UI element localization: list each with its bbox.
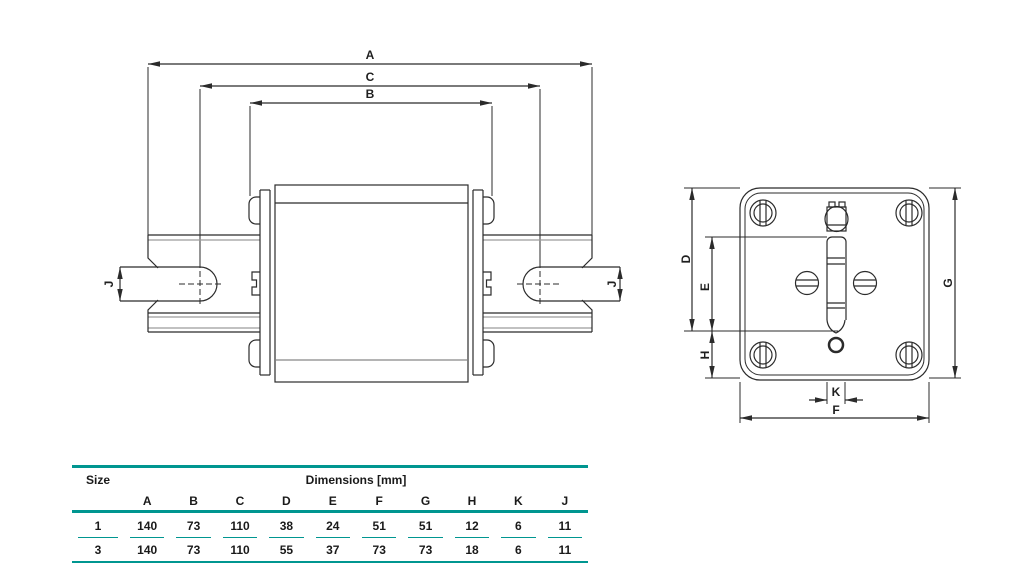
size-value: 1 bbox=[72, 513, 124, 538]
column-header-j: J bbox=[542, 495, 588, 507]
clip-top-right bbox=[483, 197, 494, 224]
left-rail bbox=[148, 235, 260, 332]
left-blade-terminal bbox=[120, 262, 223, 307]
dim-label-j-left: J bbox=[102, 281, 116, 288]
column-header-k: K bbox=[495, 495, 541, 507]
dim-label-h: H bbox=[698, 351, 712, 360]
clip-top-left bbox=[249, 197, 260, 224]
value-b: 73 bbox=[170, 513, 216, 538]
column-header-g: G bbox=[402, 495, 448, 507]
value-d: 38 bbox=[263, 513, 309, 538]
dim-label-b: B bbox=[366, 87, 375, 101]
dim-label-f: F bbox=[832, 403, 839, 417]
datasheet-page: A C B J J bbox=[0, 0, 1021, 582]
value-h: 12 bbox=[449, 513, 495, 538]
dim-label-e: E bbox=[698, 283, 712, 291]
latch-right bbox=[483, 272, 491, 295]
clip-bottom-left bbox=[249, 340, 260, 367]
dimensions-header: Dimensions [mm] bbox=[124, 474, 588, 486]
dimension-b bbox=[250, 103, 492, 196]
dim-label-k: K bbox=[832, 385, 841, 399]
fuse-body bbox=[249, 185, 494, 382]
value-j: 11 bbox=[542, 513, 588, 538]
table-row-size-1: 1 140 73 110 38 24 51 51 12 6 11 bbox=[72, 513, 588, 538]
dimensions-table: Size Dimensions [mm] A B C D E F G H K J… bbox=[72, 465, 588, 563]
value-a: 140 bbox=[124, 513, 170, 538]
value-e: 24 bbox=[310, 513, 356, 538]
dim-label-a: A bbox=[366, 48, 375, 62]
value-f: 51 bbox=[356, 513, 402, 538]
size-column-header: Size bbox=[72, 474, 124, 486]
column-header-c: C bbox=[217, 495, 263, 507]
front-view-drawing bbox=[120, 64, 620, 382]
value-f: 73 bbox=[356, 544, 402, 556]
dim-label-g: G bbox=[941, 278, 955, 287]
column-header-d: D bbox=[263, 495, 309, 507]
column-header-h: H bbox=[449, 495, 495, 507]
value-g: 73 bbox=[402, 544, 448, 556]
value-k: 6 bbox=[495, 544, 541, 556]
value-j: 11 bbox=[542, 544, 588, 556]
clip-bottom-right bbox=[483, 340, 494, 367]
value-g: 51 bbox=[402, 513, 448, 538]
table-columns-row: A B C D E F G H K J bbox=[72, 491, 588, 513]
value-c: 110 bbox=[217, 544, 263, 556]
table-header-row: Size Dimensions [mm] bbox=[72, 468, 588, 491]
column-header-a: A bbox=[124, 495, 170, 507]
dim-label-c: C bbox=[366, 70, 375, 84]
dim-label-j-right: J bbox=[605, 281, 619, 288]
column-header-f: F bbox=[356, 495, 402, 507]
value-d: 55 bbox=[263, 544, 309, 556]
value-b: 73 bbox=[170, 544, 216, 556]
value-k: 6 bbox=[495, 513, 541, 538]
value-c: 110 bbox=[217, 513, 263, 538]
column-header-e: E bbox=[310, 495, 356, 507]
latch-left bbox=[252, 272, 260, 295]
value-h: 18 bbox=[449, 544, 495, 556]
value-e: 37 bbox=[310, 544, 356, 556]
size-value: 3 bbox=[72, 544, 124, 556]
table-row-size-3: 3 140 73 110 55 37 73 73 18 6 11 bbox=[72, 538, 588, 561]
dim-label-d: D bbox=[679, 254, 693, 263]
side-view-drawing bbox=[684, 188, 961, 423]
column-header-b: B bbox=[170, 495, 216, 507]
value-a: 140 bbox=[124, 544, 170, 556]
technical-drawing: A C B J J bbox=[0, 0, 1021, 460]
